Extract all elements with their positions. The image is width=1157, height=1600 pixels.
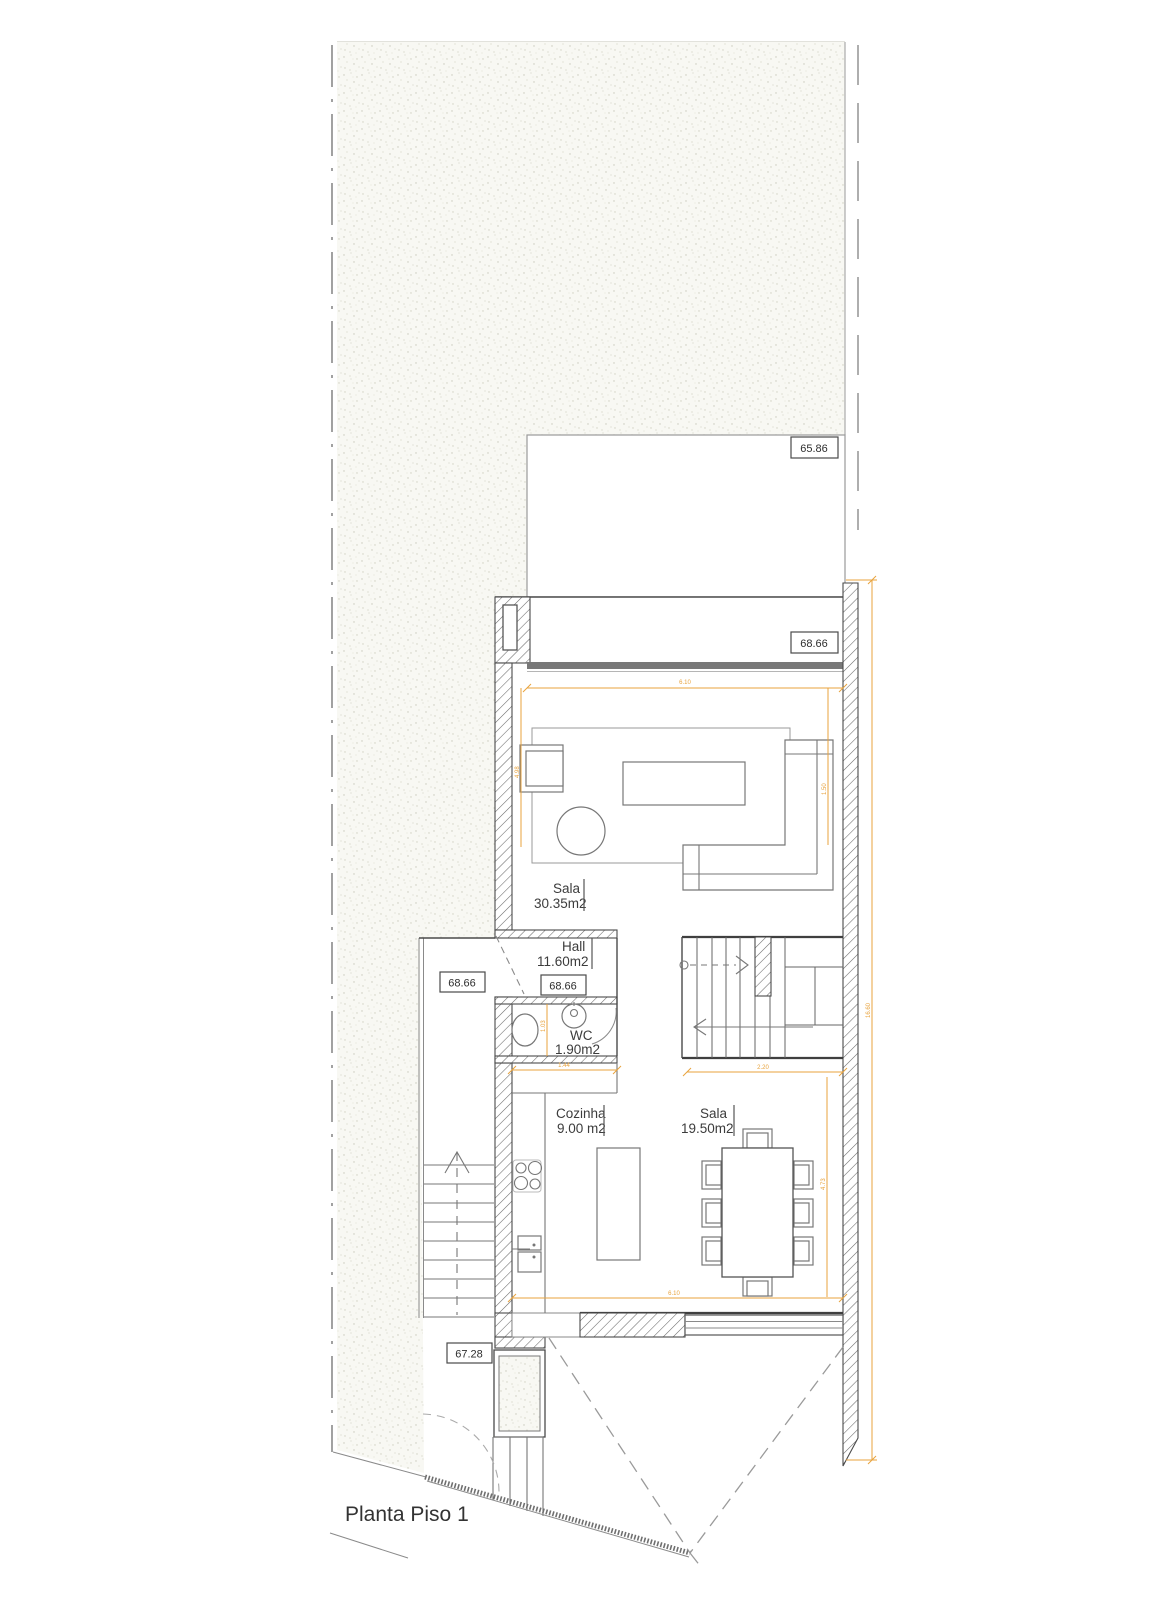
entry-door-opening bbox=[512, 1313, 580, 1337]
toilet bbox=[512, 1014, 538, 1046]
terrain-left-of-patio bbox=[337, 435, 527, 597]
wc-name: WC bbox=[570, 1028, 593, 1043]
wall-bottom-mid bbox=[580, 1313, 685, 1337]
hall-name: Hall bbox=[562, 939, 585, 954]
svg-text:4.98: 4.98 bbox=[515, 766, 521, 778]
terrain-left-of-house bbox=[337, 597, 495, 938]
driveway-sight-lines bbox=[549, 1338, 843, 1567]
window-front bbox=[685, 1315, 843, 1335]
svg-text:4.73: 4.73 bbox=[821, 1178, 827, 1190]
svg-text:6.10: 6.10 bbox=[668, 1291, 680, 1297]
elevation-driveway-value: 67.28 bbox=[455, 1349, 483, 1361]
room-label-kitchen: Cozinha 9.00 m2 bbox=[556, 1105, 606, 1136]
elevation-hall-value: 68.66 bbox=[549, 981, 577, 993]
gate-swing-arc bbox=[423, 1414, 499, 1492]
side-stair-treads bbox=[424, 1165, 494, 1317]
wall-right bbox=[843, 583, 858, 1466]
living-area: 30.35m2 bbox=[534, 896, 587, 911]
svg-text:2.20: 2.20 bbox=[757, 1065, 769, 1071]
elevation-garden-value: 65.86 bbox=[800, 443, 828, 455]
floor-plan-page: 65.86 68.66 bbox=[0, 0, 1157, 1600]
pillar-niche bbox=[503, 605, 517, 650]
kitchen-island bbox=[597, 1148, 640, 1260]
wall-hall-top bbox=[495, 930, 617, 938]
wall-left-upper bbox=[495, 663, 512, 930]
side-stair-up-arrow bbox=[445, 1152, 469, 1315]
svg-text:1.50: 1.50 bbox=[822, 783, 828, 795]
wall-left-wc bbox=[495, 997, 512, 1063]
rear-patio: 65.86 bbox=[527, 435, 845, 597]
svg-text:6.10: 6.10 bbox=[679, 680, 691, 686]
elevation-side-passage-value: 68.66 bbox=[448, 978, 476, 990]
kitchen-name: Cozinha bbox=[556, 1106, 606, 1121]
svg-text:16.60: 16.60 bbox=[866, 1002, 872, 1018]
terrain-upper-field bbox=[337, 42, 845, 435]
round-side-table bbox=[557, 807, 605, 855]
elevation-terrace-value: 68.66 bbox=[800, 638, 828, 650]
street-curb-line bbox=[330, 1533, 408, 1558]
plan-title: Planta Piso 1 bbox=[345, 1503, 469, 1526]
hall-area: 11.60m2 bbox=[537, 954, 589, 969]
stairs-side-passage: 68.66 bbox=[419, 938, 495, 1318]
dining-table bbox=[722, 1148, 793, 1277]
living-name: Sala bbox=[553, 881, 581, 896]
floor-plan-drawing: 65.86 68.66 bbox=[0, 0, 1157, 1600]
wall-bottom-corner-h bbox=[495, 1337, 545, 1348]
wall-wc-bottom bbox=[495, 1056, 617, 1063]
dining-name: Sala bbox=[700, 1106, 728, 1121]
dining-area: 19.50m2 bbox=[681, 1121, 734, 1136]
kitchen-area: 9.00 m2 bbox=[557, 1121, 606, 1136]
svg-text:1.44: 1.44 bbox=[558, 1063, 570, 1069]
wall-hall-wc bbox=[495, 997, 617, 1004]
terrain-left-strip bbox=[337, 938, 424, 1473]
svg-text:1.03: 1.03 bbox=[541, 1020, 547, 1032]
planter bbox=[494, 1350, 545, 1437]
patio-slab bbox=[527, 435, 845, 597]
armchair bbox=[520, 745, 563, 792]
glass-sliding-door bbox=[527, 662, 843, 669]
wall-left-kitchen bbox=[495, 1063, 512, 1315]
front-exterior: 67.28 bbox=[423, 1338, 843, 1567]
wc-area: 1.90m2 bbox=[555, 1042, 600, 1057]
coffee-table bbox=[623, 762, 745, 805]
stair-newel-wall bbox=[755, 937, 771, 996]
exterior-steps bbox=[493, 1437, 543, 1516]
